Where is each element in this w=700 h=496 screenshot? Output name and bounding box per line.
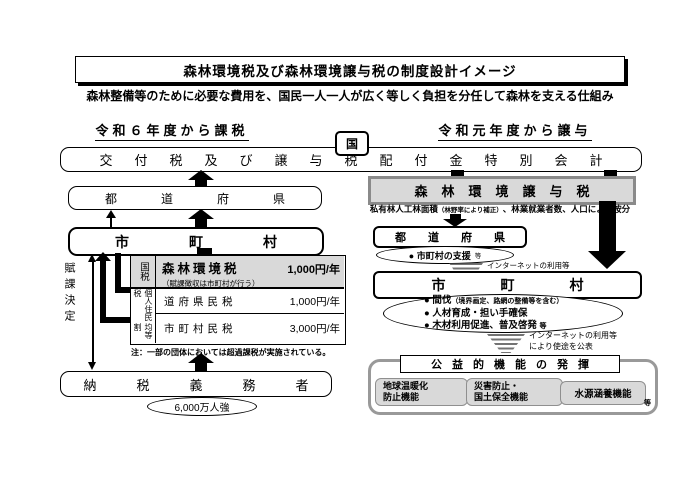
arrow-up-taxpayer-shaft: [195, 362, 207, 371]
taxpayer-bar: 納税義務者: [60, 371, 332, 397]
nation-box: 国: [335, 131, 369, 156]
page-title: 森林環境税及び森林環境譲与税の制度設計イメージ: [183, 60, 516, 80]
title-box: 森林環境税及び森林環境譲与税の制度設計イメージ: [75, 56, 625, 83]
municipal-resident-tax-row: 市町村民税 3,000円/年: [156, 314, 344, 343]
arrow-up-pref-to-nation-shaft: [195, 179, 207, 187]
diagram-page: 森林環境税及び森林環境譲与税の制度設計イメージ 森林整備等のために必要な費用を、…: [0, 0, 700, 496]
l-connector-outer-h: [100, 317, 131, 323]
disclosure-lines-icon-2: [487, 334, 525, 353]
assessment-arrow-down-icon: [88, 362, 96, 370]
disclosure-note-muni: インターネットの利用等 により使途を公表: [529, 331, 617, 352]
assessment-arrow-shaft: [92, 261, 94, 363]
big-arrow-down-shaft: [599, 201, 616, 253]
left-period-heading: 令和６年度から課税: [80, 121, 260, 139]
forest-tax-amount: 1,000円/年: [287, 261, 340, 277]
benefit-box-warming: 地球温暖化 防止機能: [375, 378, 468, 406]
benefit-box-disaster: 災害防止・ 国土保全機能: [466, 378, 563, 406]
table-footnote: 注：一部の団体においては超過課税が実施されている。: [131, 347, 351, 358]
resident-tax-label-cell: 個人住民税 均等割: [131, 289, 156, 343]
benefit-etc-label: 等: [644, 398, 651, 408]
municipality-uses-ellipse: ● 間伐（境界画定、路網の整備等を含む） ● 人材育成・担い手確保 ● 木材利用…: [383, 294, 623, 333]
l-connector-outer-v: [100, 260, 106, 323]
thin-arrow-up-shaft: [110, 217, 112, 228]
prefecture-bar-right: 都道府県: [373, 226, 527, 248]
use-item-2: ● 人材育成・担い手確保: [424, 308, 622, 320]
use-item-1: ● 間伐（境界画定、路網の整備等を含む）: [424, 295, 622, 308]
resident-tax-group-label: 個人住民税: [132, 289, 154, 323]
subtitle: 森林整備等のために必要な費用を、国民一人一人が広く等しく負担を分任して森林を支え…: [50, 87, 650, 103]
prefecture-bar-left: 都道府県: [68, 186, 322, 210]
arrow-up-muni-to-pref-shaft: [195, 218, 207, 228]
right-period-heading: 令和元年度から譲与: [403, 121, 623, 139]
forest-tax-name: 森林環境税: [162, 258, 240, 277]
public-benefit-heading: 公益的機能の発揮: [400, 355, 620, 373]
prefecture-resident-tax-row: 道府県民税 1,000円/年: [156, 289, 344, 314]
assessment-label: 賦課決定: [61, 262, 77, 326]
taxpayer-count-ellipse: 6,000万人強: [147, 397, 257, 416]
tax-table: 国税 森林環境税 1,000円/年 （賦課徴収は市町村が行う） 個人住民税 均等…: [130, 255, 346, 345]
l-connector-inner-h: [115, 287, 131, 293]
transfer-tax-bar: 森林環境譲与税: [368, 176, 636, 205]
forest-tax-note: （賦課徴収は市町村が行う）: [162, 278, 340, 289]
forest-tax-header-cell: 森林環境税 1,000円/年 （賦課徴収は市町村が行う）: [156, 256, 344, 289]
big-arrow-down-icon: [588, 251, 626, 269]
national-tax-cell: 国税: [131, 256, 156, 289]
per-capita-label: 均等割: [132, 323, 154, 343]
benefit-box-water: 水源涵養機能: [560, 381, 646, 405]
